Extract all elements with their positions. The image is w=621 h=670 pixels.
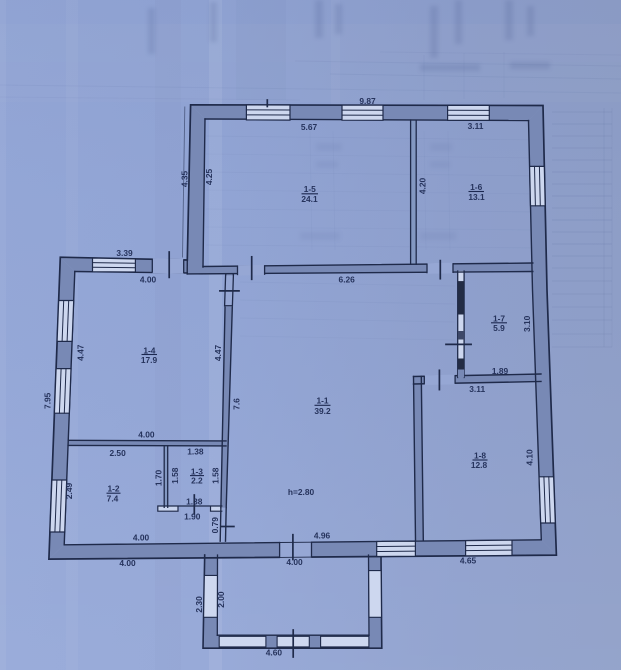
svg-text:3.11: 3.11 xyxy=(469,384,485,394)
svg-text:39.2: 39.2 xyxy=(314,406,331,416)
svg-text:1.38: 1.38 xyxy=(187,447,204,457)
svg-text:1-2: 1-2 xyxy=(107,484,119,494)
svg-text:5.67: 5.67 xyxy=(301,122,318,132)
svg-text:6.26: 6.26 xyxy=(339,275,356,285)
svg-text:1.70: 1.70 xyxy=(153,470,163,487)
svg-text:4.96: 4.96 xyxy=(314,531,331,541)
svg-text:2.49: 2.49 xyxy=(64,483,74,500)
svg-text:4.47: 4.47 xyxy=(76,344,86,361)
svg-text:4.00: 4.00 xyxy=(286,557,303,567)
svg-text:1-4: 1-4 xyxy=(143,345,155,355)
svg-text:h=2.80: h=2.80 xyxy=(288,487,315,497)
svg-text:1-8: 1-8 xyxy=(474,450,486,460)
svg-text:4.00: 4.00 xyxy=(119,558,136,568)
svg-text:3.11: 3.11 xyxy=(468,121,484,131)
svg-text:1.58: 1.58 xyxy=(170,467,180,484)
svg-text:1.90: 1.90 xyxy=(184,511,201,521)
svg-text:2.00: 2.00 xyxy=(216,591,226,608)
svg-text:7.95: 7.95 xyxy=(43,392,53,409)
svg-text:4.00: 4.00 xyxy=(133,533,150,543)
svg-text:1-1: 1-1 xyxy=(316,396,328,406)
svg-text:4.25: 4.25 xyxy=(204,169,214,186)
svg-text:2.50: 2.50 xyxy=(109,448,126,458)
svg-text:4.20: 4.20 xyxy=(417,178,427,195)
svg-text:4.35: 4.35 xyxy=(179,171,189,188)
svg-text:1.38: 1.38 xyxy=(186,496,203,506)
svg-text:3.39: 3.39 xyxy=(116,248,133,258)
svg-text:4.10: 4.10 xyxy=(525,449,535,466)
svg-text:1.89: 1.89 xyxy=(492,366,509,376)
svg-text:7.6: 7.6 xyxy=(232,398,242,410)
svg-text:4.47: 4.47 xyxy=(213,345,223,362)
svg-text:2.2: 2.2 xyxy=(191,476,203,486)
svg-text:1.58: 1.58 xyxy=(211,467,221,484)
svg-text:1-7: 1-7 xyxy=(493,313,505,323)
svg-text:7.4: 7.4 xyxy=(107,494,119,504)
svg-text:12.8: 12.8 xyxy=(471,460,488,470)
svg-text:0.79: 0.79 xyxy=(210,517,220,534)
svg-text:24.1: 24.1 xyxy=(301,194,318,204)
svg-text:4.65: 4.65 xyxy=(460,556,477,566)
svg-text:1-5: 1-5 xyxy=(304,184,316,194)
svg-text:9.87: 9.87 xyxy=(359,96,376,106)
svg-text:5.9: 5.9 xyxy=(493,323,505,333)
svg-text:4.00: 4.00 xyxy=(140,275,157,285)
svg-text:3.10: 3.10 xyxy=(522,315,532,332)
svg-text:4.60: 4.60 xyxy=(266,647,283,657)
svg-text:17.9: 17.9 xyxy=(141,355,158,365)
svg-text:2.30: 2.30 xyxy=(194,596,204,613)
svg-text:13.1: 13.1 xyxy=(468,192,485,202)
svg-text:4.00: 4.00 xyxy=(138,430,155,440)
svg-text:1-6: 1-6 xyxy=(470,182,482,192)
